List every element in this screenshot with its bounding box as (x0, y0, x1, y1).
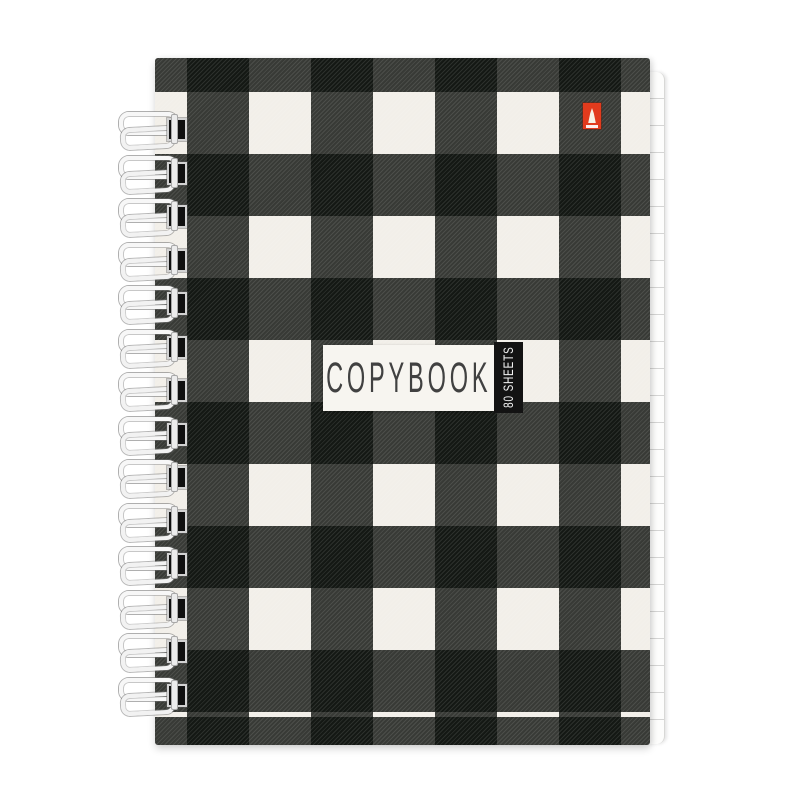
notebook-product-photo: COPYBOOK 80 SHEETS (0, 0, 800, 800)
product-title: COPYBOOK (326, 353, 491, 403)
notebook-cover: COPYBOOK 80 SHEETS (155, 58, 650, 745)
title-label: COPYBOOK (323, 345, 494, 411)
brand-badge (583, 103, 601, 129)
sheets-count-label: 80 SHEETS (501, 347, 516, 408)
brand-badge-text-bar (586, 125, 598, 128)
sheets-strip: 80 SHEETS (494, 342, 523, 413)
brand-logo-icon (587, 108, 597, 123)
